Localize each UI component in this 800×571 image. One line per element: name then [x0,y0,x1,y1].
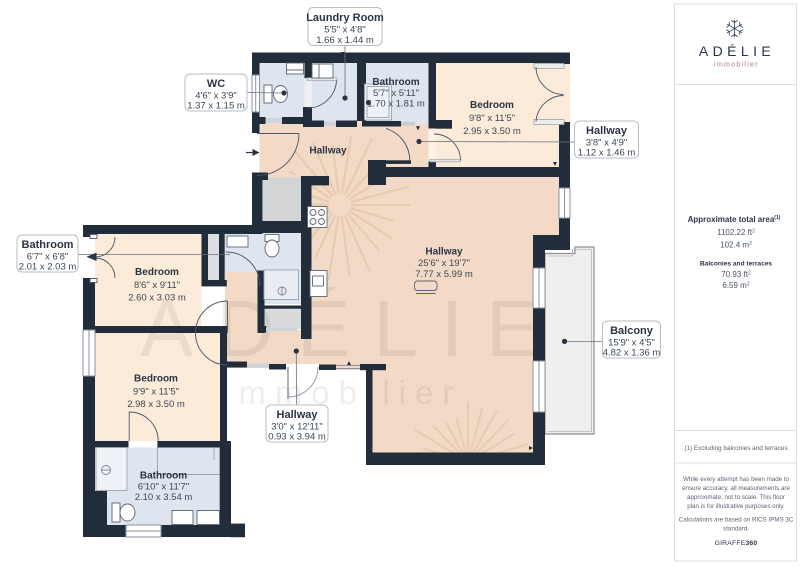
svg-text:Calculations are based on RICS: Calculations are based on RICS IPMS 3C [679,517,794,524]
svg-text:25'6" x 19'7": 25'6" x 19'7" [418,258,470,269]
svg-text:5'7" x 5'11": 5'7" x 5'11" [373,88,419,99]
svg-text:WC: WC [207,78,225,90]
svg-text:Approximate total area(1): Approximate total area(1) [688,215,781,224]
svg-text:1.37 x 1.15 m: 1.37 x 1.15 m [187,101,245,112]
svg-text:standard.: standard. [723,526,749,533]
svg-text:102.4 m2: 102.4 m2 [720,241,752,250]
svg-text:4.82 x 1.36 m: 4.82 x 1.36 m [603,348,661,359]
svg-text:7.77 x 5.99 m: 7.77 x 5.99 m [415,269,473,280]
svg-text:5'5" x 4'8": 5'5" x 4'8" [324,25,366,36]
svg-text:Hallway: Hallway [425,247,463,258]
svg-text:Bathroom: Bathroom [372,77,419,88]
svg-text:approximate, not to scale. Thi: approximate, not to scale. This floor [687,494,785,501]
svg-text:Balcony: Balcony [610,325,654,337]
svg-text:2.60 x 3.03 m: 2.60 x 3.03 m [128,293,186,304]
svg-text:(1) Excluding balconies and te: (1) Excluding balconies and terraces [684,445,787,452]
svg-text:plan is for illustrative purpo: plan is for illustrative purposes only. [687,503,785,510]
svg-text:Bedroom: Bedroom [135,267,179,278]
svg-text:6'10" x 11'7": 6'10" x 11'7" [138,482,189,493]
svg-text:Bedroom: Bedroom [470,100,514,111]
svg-text:GIRAFFE360: GIRAFFE360 [715,540,758,547]
svg-text:0.93 x 3.94 m: 0.93 x 3.94 m [268,432,326,443]
svg-text:8'6" x 9'11": 8'6" x 9'11" [134,280,180,291]
svg-text:2.95 x 3.50 m: 2.95 x 3.50 m [463,126,521,137]
svg-text:1.66 x 1.44 m: 1.66 x 1.44 m [316,35,374,46]
svg-text:Bathroom: Bathroom [140,471,187,482]
svg-text:70.93 ft2: 70.93 ft2 [721,270,751,279]
svg-text:6.59 m2: 6.59 m2 [722,281,749,290]
svg-text:1.70 x 1.81 m: 1.70 x 1.81 m [367,99,425,110]
svg-text:Hallway: Hallway [586,125,628,137]
svg-text:Bathroom: Bathroom [22,239,74,251]
svg-text:Hallway: Hallway [277,409,319,421]
svg-text:While every attempt has been m: While every attempt has been made to [683,476,789,483]
svg-text:immobilier: immobilier [714,62,759,69]
svg-text:Bedroom: Bedroom [134,374,178,385]
svg-text:ADÉLIE: ADÉLIE [699,43,775,59]
svg-text:Balconies and terraces: Balconies and terraces [700,261,773,268]
svg-text:2.10 x 3.54 m: 2.10 x 3.54 m [135,492,193,503]
svg-text:2.01 x 2.03 m: 2.01 x 2.03 m [19,262,77,273]
svg-text:1102.22 ft2: 1102.22 ft2 [717,228,755,237]
svg-text:Laundry Room: Laundry Room [306,12,384,24]
svg-text:1.12 x 1.46 m: 1.12 x 1.46 m [578,148,636,159]
svg-text:9'8" x 11'5": 9'8" x 11'5" [469,113,515,124]
svg-text:9'9" x 11'5": 9'9" x 11'5" [133,387,179,398]
svg-text:immobilier: immobilier [222,374,462,411]
svg-text:Hallway: Hallway [309,146,347,157]
svg-text:ensure accuracy, all measureme: ensure accuracy, all measurements are [682,485,790,492]
svg-text:2.98 x 3.50 m: 2.98 x 3.50 m [127,399,185,410]
